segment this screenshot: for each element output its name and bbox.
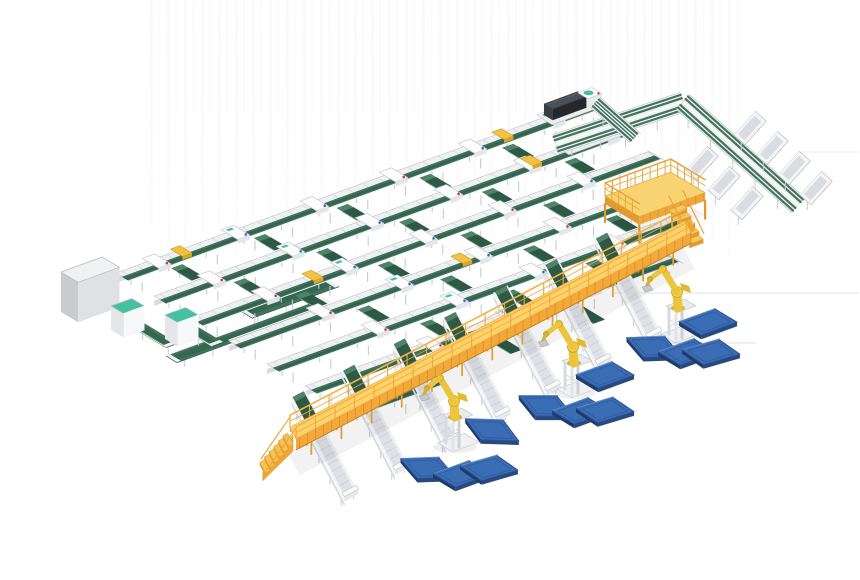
gravity-discharge-bin — [708, 165, 741, 204]
control-cabinet — [111, 299, 145, 338]
walkway-stairs — [260, 417, 296, 481]
control-cabinet — [165, 308, 199, 347]
gravity-discharge-bin — [686, 145, 719, 184]
gravity-discharge-bin — [731, 185, 764, 224]
isometric-scene — [0, 0, 860, 580]
gravity-discharge-bin — [800, 170, 833, 209]
render-canvas: 3D isometric rendering of an automated l… — [0, 0, 860, 580]
infeed-machine-cabinet — [61, 257, 120, 322]
